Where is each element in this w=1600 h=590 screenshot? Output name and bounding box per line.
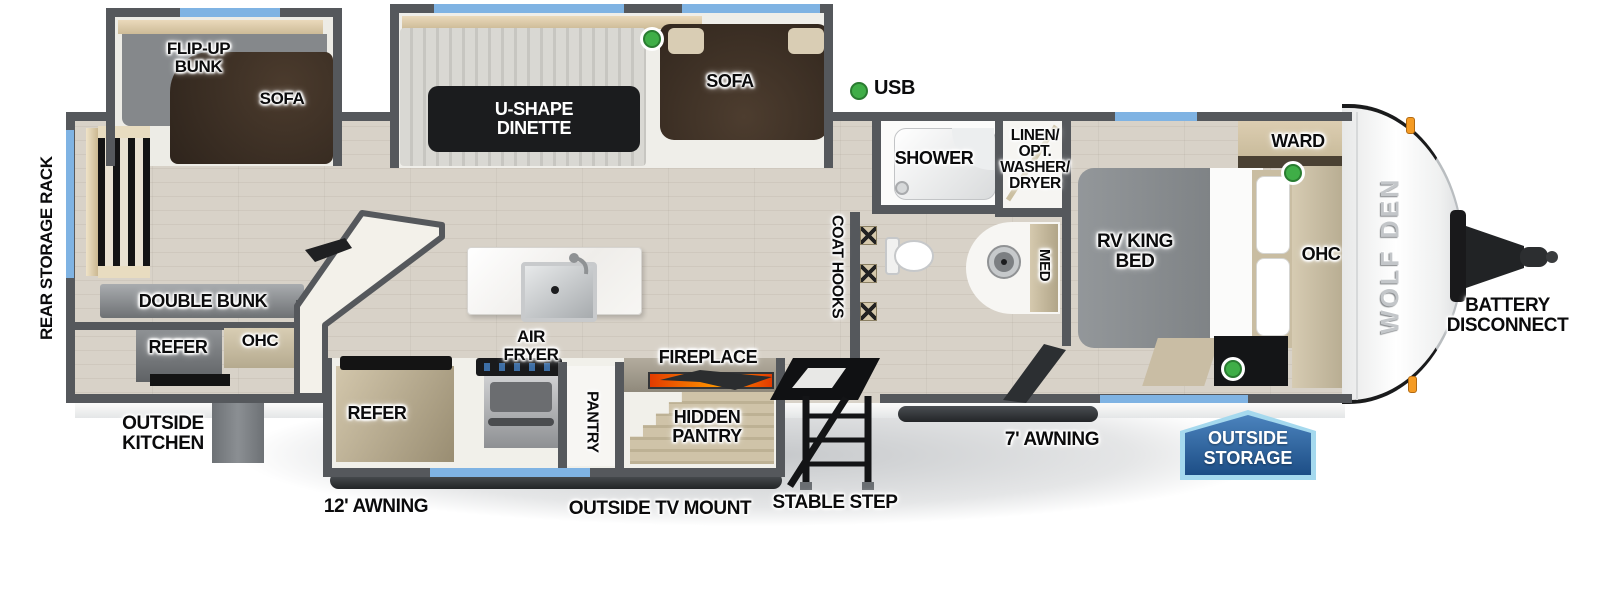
living-sofa-label: SOFA (694, 72, 766, 91)
fireplace-label: FIREPLACE (648, 348, 768, 367)
headboard-cushion-top (1256, 176, 1290, 254)
hitch-a-frame (1466, 226, 1524, 288)
air-fryer-label: AIR FRYER (491, 328, 571, 363)
storage-rack-rail (86, 128, 98, 276)
wall-top-right (827, 112, 1352, 121)
slideout-living-wall-right (824, 4, 833, 168)
headboard-cushion-bottom (1256, 258, 1290, 336)
outside-storage-badge-fill: OUTSIDE STORAGE (1185, 415, 1311, 475)
awning-7-label: 7' AWNING (992, 430, 1112, 450)
storage-rack-cap-bottom (98, 266, 150, 278)
outside-storage-label: OUTSIDE STORAGE (1185, 421, 1311, 469)
med-label: MED (1032, 234, 1056, 296)
shower-wall-bottom (872, 205, 1004, 214)
double-bunk-label: DOUBLE BUNK (133, 292, 273, 311)
battery-disconnect-label: BATTERY DISCONNECT (1430, 296, 1585, 336)
hitch-ball (1546, 251, 1558, 263)
galley-refer-top (340, 356, 452, 370)
bunk-valance (118, 20, 323, 34)
slideout-bunk-wall-left (106, 8, 115, 166)
outside-kitchen-label: OUTSIDE KITCHEN (107, 414, 219, 454)
island-sink (521, 262, 597, 322)
ward-indicator-dot (1284, 164, 1302, 182)
galley-window (430, 468, 590, 477)
marker-light-top (1406, 117, 1415, 134)
awning-roller-7ft (898, 406, 1098, 422)
dinette-label: U-SHAPE DINETTE (479, 100, 589, 139)
ward-label: WARD (1258, 132, 1338, 151)
coat-hooks-wall (850, 212, 860, 360)
pantry-label: PANTRY (578, 380, 604, 464)
linen-label: LINEN/ OPT. WASHER/ DRYER (998, 128, 1072, 192)
slideout-bunk-window (180, 8, 280, 17)
galley-wall-right (776, 358, 785, 477)
bedroom-ohc-label: OHC (1292, 245, 1350, 264)
cooktop-knobs (484, 363, 556, 371)
pantry-wall-right (615, 362, 624, 468)
bunk-sofa-label: SOFA (246, 90, 318, 108)
coat-hook-2 (860, 264, 877, 283)
coat-hook-3 (860, 302, 877, 321)
coat-hook-1 (860, 226, 877, 245)
galley-wall-left (323, 358, 332, 477)
bedside-indicator-dot (1224, 360, 1242, 378)
flip-up-bunk-label: FLIP-UP BUNK (156, 40, 241, 75)
dinette-usb-indicator-dot (643, 30, 661, 48)
sofa-window (682, 4, 820, 13)
outside-tv-mount-label: OUTSIDE TV MOUNT (550, 499, 770, 519)
slideout-bunk-wall-right (333, 8, 342, 166)
linen-wall-bottom (1000, 208, 1071, 217)
marker-light-bottom (1408, 376, 1417, 393)
bed-foot-cabinet-black (1214, 336, 1288, 386)
king-bed-label: RV KING BED (1085, 232, 1185, 272)
cap-seam (1356, 112, 1358, 400)
sofa-pillow-right (788, 28, 824, 54)
bunkroom-ohc-label: OHC (228, 332, 292, 350)
hitch-coupler (1520, 247, 1548, 267)
coat-hooks-label: COAT HOOKS (822, 202, 850, 332)
wall-bottom-left (66, 394, 327, 403)
stable-step-label: STABLE STEP (755, 493, 915, 513)
usb-label: USB (874, 78, 944, 99)
galley-refer-label: REFER (332, 404, 422, 423)
sofa-pillow-left (668, 28, 704, 54)
hidden-pantry-label: HIDDEN PANTRY (651, 408, 763, 445)
shower-label: SHOWER (888, 149, 980, 168)
rear-storage-rack-label: REAR STORAGE RACK (26, 148, 68, 348)
range-oven-window (490, 382, 552, 412)
sink-drain (551, 286, 559, 294)
dinette-window (434, 4, 624, 13)
dinette-table: U-SHAPE DINETTE (428, 86, 640, 152)
fireplace-flame-strip (648, 372, 774, 389)
slideout-living-wall-left (390, 4, 399, 168)
pantry-wall-left (558, 362, 567, 468)
wall-top-mid (336, 112, 396, 121)
bedroom-top-window (1115, 112, 1197, 121)
shower-wall-left (872, 118, 881, 214)
bunkroom-refer-label: REFER (138, 338, 218, 357)
floorplan-canvas: FLIP-UP BUNK SOFA U-SHAPE DINETTE SOFA U… (0, 0, 1600, 590)
range-handle (488, 418, 554, 426)
usb-indicator-dot (850, 82, 868, 100)
outside-kitchen-hatch (212, 403, 264, 463)
awning-12-label: 12' AWNING (306, 497, 446, 517)
bedroom-bottom-window (1100, 395, 1248, 403)
bunkroom-refer-base (150, 374, 230, 386)
brand-logo: WOLF DEN (1366, 150, 1416, 360)
